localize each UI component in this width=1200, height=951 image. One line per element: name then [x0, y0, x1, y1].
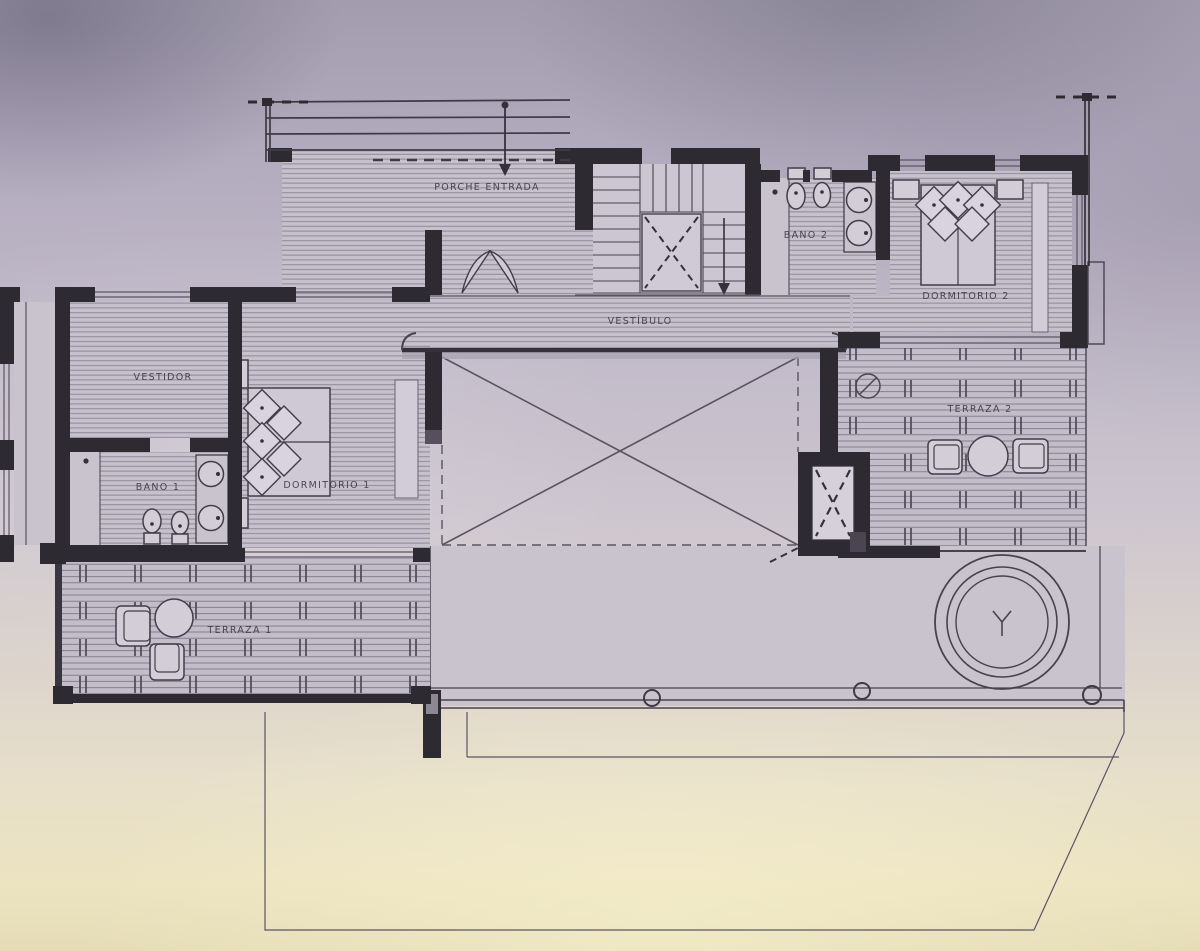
room-label-terraza-2: TERRAZA 2	[947, 404, 1013, 415]
drain-dot	[83, 458, 88, 463]
floor-plan-drawing: TERRAZA 1 TERRAZA 2 P	[0, 0, 1200, 951]
room-bano-1: BAÑO 1	[70, 452, 228, 545]
terrace-table-icon	[968, 436, 1008, 476]
room-terraza-1: TERRAZA 1	[53, 558, 431, 704]
drain-dot	[772, 189, 777, 194]
toilet-icon	[143, 509, 161, 544]
window-glazing	[245, 552, 413, 557]
bidet-icon	[814, 168, 832, 208]
bidet-icon	[172, 512, 189, 545]
terrace-table-icon	[155, 599, 193, 637]
room-label-bano-2: BAÑO 2	[784, 230, 828, 241]
terrace-chair-icon	[150, 644, 184, 680]
room-label-terraza-1: TERRAZA 1	[207, 625, 273, 636]
wardrobe	[395, 380, 418, 498]
window-glazing	[1077, 195, 1082, 265]
room-dormitorio-1: DORMITORIO 1	[231, 302, 430, 548]
staircase	[593, 164, 745, 295]
shaft	[770, 452, 870, 562]
room-label-vestidor: VESTIDOR	[134, 372, 193, 383]
lower-level-outline	[265, 710, 1124, 930]
right-balcony	[1088, 262, 1104, 344]
room-terraza-2: TERRAZA 2	[838, 348, 1086, 558]
double-height-void	[402, 333, 846, 545]
room-label-porche: PORCHE ENTRADA	[434, 182, 540, 193]
floor-plan-photo: TERRAZA 1 TERRAZA 2 P	[0, 0, 1200, 951]
terrace-slab	[423, 546, 1125, 758]
entry-direction-arrow-icon	[499, 102, 511, 177]
room-bano-2: BAÑO 2	[761, 168, 876, 295]
room-label-vestibulo: VESTÍBULO	[608, 315, 673, 327]
room-label-bano-1: BAÑO 1	[136, 482, 180, 493]
room-vestidor: VESTIDOR	[70, 302, 228, 438]
room-vestibulo: VESTÍBULO	[400, 296, 850, 344]
toilet-icon	[787, 168, 805, 209]
curtain-zone	[1032, 183, 1048, 332]
room-label-dormitorio-2: DORMITORIO 2	[922, 291, 1009, 302]
window-glazing	[880, 337, 1060, 343]
terrace-chair-icon	[928, 440, 962, 474]
nightstand	[997, 180, 1023, 199]
terrace-chair-icon	[1013, 439, 1048, 473]
left-balcony	[14, 302, 55, 545]
room-label-dormitorio-1: DORMITORIO 1	[283, 480, 370, 491]
nightstand	[893, 180, 919, 199]
terrace-chair-icon	[116, 606, 150, 646]
